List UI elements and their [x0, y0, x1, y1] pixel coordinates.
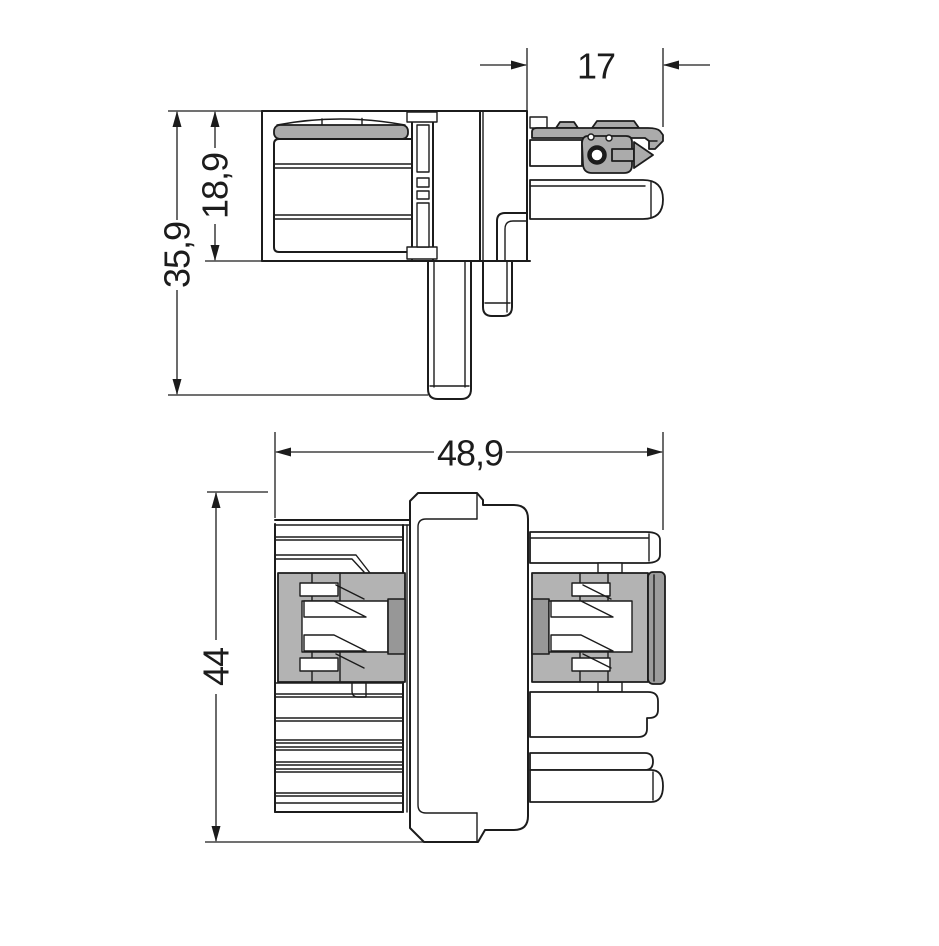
- right-contact-frame: [532, 572, 665, 684]
- dim-label-overall-width: 48,9: [437, 433, 503, 474]
- rib-column-slot: [417, 203, 429, 247]
- block-wedge: [275, 559, 364, 572]
- arm-top-tab: [530, 117, 547, 128]
- latch-pivot-ring: [590, 148, 605, 163]
- arm-bump: [592, 121, 639, 128]
- rib-column-bottom-tab: [407, 247, 437, 259]
- center-flange-outline: [410, 493, 528, 842]
- frame-wall: [388, 599, 405, 654]
- arrowhead: [173, 379, 182, 395]
- right-frame-tab: [598, 563, 622, 573]
- arrowhead: [173, 111, 182, 127]
- plug-body: [274, 139, 412, 252]
- arrowhead: [211, 111, 220, 127]
- right-frame-tab: [598, 682, 622, 692]
- right-mid-bar: [530, 692, 658, 737]
- foot-bracket-outer: [497, 213, 527, 261]
- arrowhead: [647, 448, 663, 457]
- block-step-tab: [352, 683, 366, 697]
- plug-gray-cap: [274, 125, 408, 139]
- frame-slit: [300, 658, 338, 671]
- rib-column-slot: [417, 191, 429, 199]
- dim-label-arm-width: 17: [577, 46, 615, 87]
- center-flange-inner: [418, 519, 477, 813]
- side-view: [262, 111, 663, 399]
- latch-notch: [606, 135, 612, 141]
- arrowhead: [511, 61, 527, 70]
- dim-label-socket-height: 18,9: [195, 153, 236, 219]
- foot-bracket-inner: [505, 221, 527, 261]
- left-contact-frame: [278, 573, 405, 682]
- rib-column-top-tab: [407, 112, 437, 122]
- dim-label-front-overall-height: 44: [196, 648, 237, 686]
- dim-overall-width: 48,9: [275, 432, 663, 530]
- front-view: [275, 493, 665, 842]
- arrowhead: [212, 826, 221, 842]
- frame-wall: [532, 599, 549, 654]
- frame-slit: [300, 583, 338, 596]
- arrowhead: [211, 245, 220, 261]
- dim-label-side-overall-height: 35,9: [157, 222, 198, 288]
- latch-notch: [588, 134, 594, 140]
- arrowhead: [275, 448, 291, 457]
- right-lower-bar-small: [530, 753, 653, 770]
- frame-end-cap: [648, 572, 665, 684]
- rib-column-slot: [417, 178, 429, 187]
- right-lower-bar-large: [530, 770, 663, 802]
- connector-technical-drawing: 17 18,9 35,9: [0, 0, 939, 946]
- right-top-bar: [530, 532, 660, 563]
- arrowhead: [663, 61, 679, 70]
- technical-drawing-canvas: 17 18,9 35,9: [0, 0, 939, 946]
- rib-column-slot: [417, 125, 429, 172]
- dim-arm-width: 17: [480, 46, 710, 128]
- arrowhead: [212, 492, 221, 508]
- arm-white-block: [530, 140, 582, 166]
- latch-pointer-shaft: [612, 149, 634, 161]
